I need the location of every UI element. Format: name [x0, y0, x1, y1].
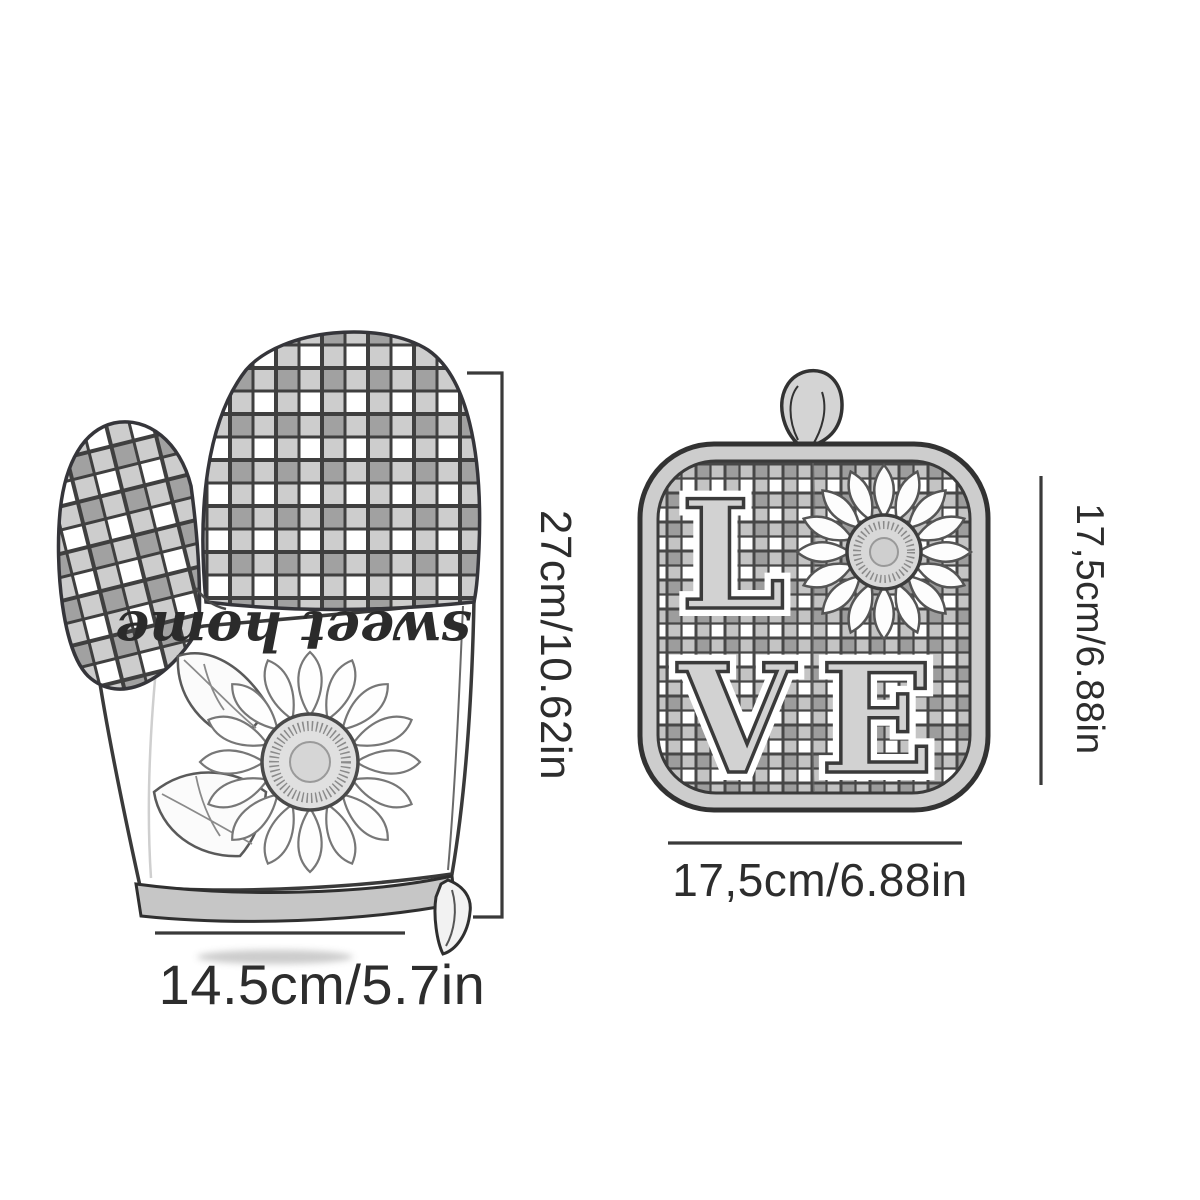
mitt-height-label: 27cm/10.62in: [531, 510, 580, 780]
mitt-width-label: 14.5cm/5.7in: [159, 953, 486, 1016]
love-letter-v: V: [677, 632, 797, 808]
product-dimension-diagram: sweet home: [0, 0, 1200, 1200]
sunflower-disk-center: [290, 742, 330, 782]
love-letter-l: L: [680, 468, 785, 644]
sweet-home-print-text: sweet home: [115, 599, 472, 663]
sunflower-disk-center: [870, 538, 898, 566]
sketch-illustration: sweet home: [0, 0, 1200, 1200]
oven-mitt-illustration: sweet home: [58, 332, 479, 964]
love-letter-e: E: [820, 632, 934, 808]
pot-holder-sunflower-motif: [797, 465, 971, 639]
pot-holder-height-label: 17,5cm/6.88in: [1068, 503, 1111, 755]
pot-holder-illustration: L L V V E E: [640, 371, 988, 810]
mitt-dome: [203, 332, 480, 610]
pot-holder-width-label: 17,5cm/6.88in: [672, 854, 967, 906]
